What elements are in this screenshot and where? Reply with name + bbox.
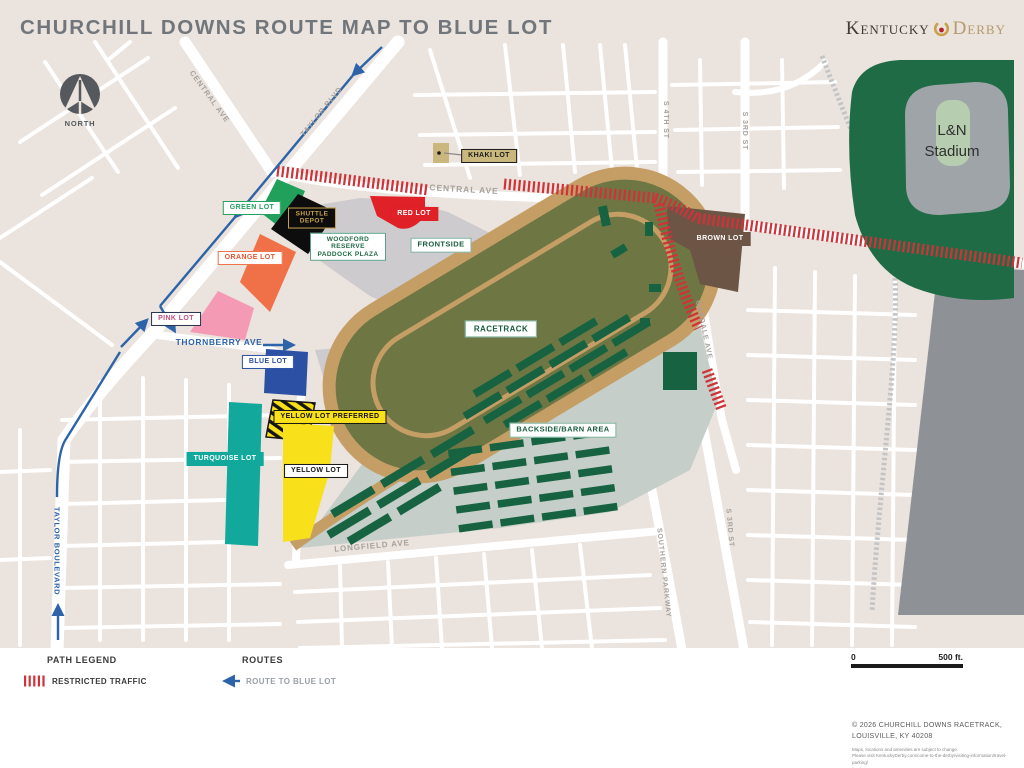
street-label-thornberry-ave: THORNBERRY AVE	[176, 338, 263, 348]
fine-print-line1: Maps, locations and amenities are subjec…	[852, 747, 1017, 754]
footer-credits: © 2026 CHURCHILL DOWNS RACETRACK, LOUISV…	[852, 721, 1017, 768]
route-to-blue-lot-label: ROUTE TO BLUE LOT	[246, 677, 336, 686]
logo-derby-text: Derby	[953, 18, 1006, 40]
scale-start: 0	[851, 652, 856, 662]
copyright-line2: LOUISVILLE, KY 40208	[852, 732, 1017, 743]
yellow-lot-label: YELLOW LOT	[284, 464, 348, 478]
logo-kentucky-text: Kentucky	[846, 18, 930, 40]
frontside-label: FRONTSIDE	[411, 238, 472, 253]
copyright-line1: © 2026 CHURCHILL DOWNS RACETRACK,	[852, 721, 1017, 732]
stadium-label-line1: L&N	[924, 120, 979, 141]
street-label-taylor-boulevard: TAYLOR BOULEVARD	[52, 507, 61, 595]
path-legend-title: PATH LEGEND	[47, 655, 117, 665]
route-map-page: CHURCHILL DOWNS ROUTE MAP TO BLUE LOT Ke…	[0, 0, 1024, 768]
racetrack-label: RACETRACK	[465, 320, 537, 337]
street-label-s-3rd-st-north: S 3RD ST	[740, 112, 748, 151]
scale-end: 500 ft.	[938, 652, 963, 662]
orange-lot-label: ORANGE LOT	[218, 251, 283, 265]
fine-print-line2: Please visit KentuckyDerby.com/come-to-t…	[852, 753, 1017, 767]
turquoise-lot-label: TURQUOISE LOT	[187, 452, 264, 466]
khaki-lot-label: KHAKI LOT	[461, 149, 517, 163]
backside-barn-area-label: BACKSIDE/BARN AREA	[509, 423, 616, 438]
shuttle-depot-label: SHUTTLE DEPOT	[288, 208, 336, 229]
page-title: CHURCHILL DOWNS ROUTE MAP TO BLUE LOT	[20, 16, 553, 40]
brown-lot-label: BROWN LOT	[690, 232, 751, 246]
scale-bar: 0 500 ft.	[851, 652, 963, 668]
north-label: NORTH	[58, 119, 102, 128]
yellow-lot-preferred-label: YELLOW LOT PREFERRED	[274, 410, 387, 424]
woodford-paddock-plaza-label: WOODFORD RESERVE PADDOCK PLAZA	[310, 233, 386, 261]
kentucky-derby-logo: Kentucky Derby	[846, 18, 1006, 40]
blue-lot-label: BLUE LOT	[242, 355, 294, 369]
turquoise-lot-shape	[225, 402, 262, 546]
stadium-label: L&N Stadium	[924, 120, 979, 162]
horseshoe-rose-icon	[933, 21, 950, 38]
pink-lot-label: PINK LOT	[151, 312, 201, 326]
green-lot-label: GREEN LOT	[223, 201, 281, 215]
routes-title: ROUTES	[242, 655, 283, 665]
street-label-s-4th-st: S 4TH ST	[661, 101, 669, 139]
restricted-traffic-label: RESTRICTED TRAFFIC	[52, 677, 147, 686]
stadium-label-line2: Stadium	[924, 141, 979, 162]
north-indicator: NORTH	[58, 72, 102, 128]
red-lot-label: RED LOT	[390, 207, 438, 221]
khaki-lot-dot	[437, 151, 441, 155]
scale-bar-line	[851, 664, 963, 668]
